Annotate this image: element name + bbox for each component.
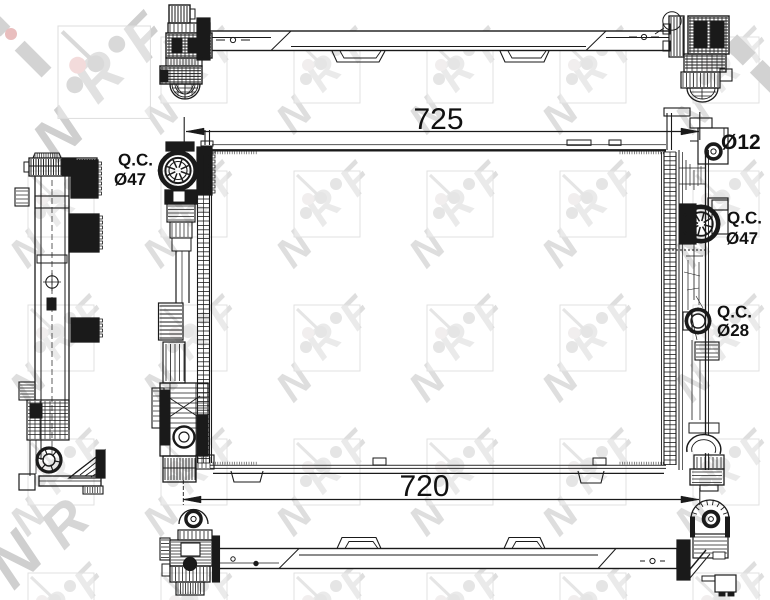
svg-text:Ø12: Ø12 [721, 131, 761, 154]
svg-text:720: 720 [399, 470, 449, 503]
svg-text:Ø47: Ø47 [726, 229, 758, 248]
svg-text:Q.C.: Q.C. [717, 303, 752, 322]
svg-text:Q.C.: Q.C. [727, 209, 762, 228]
svg-text:Ø28: Ø28 [717, 321, 749, 340]
svg-text:Ø47: Ø47 [114, 170, 146, 189]
svg-text:Q.C.: Q.C. [118, 151, 153, 170]
